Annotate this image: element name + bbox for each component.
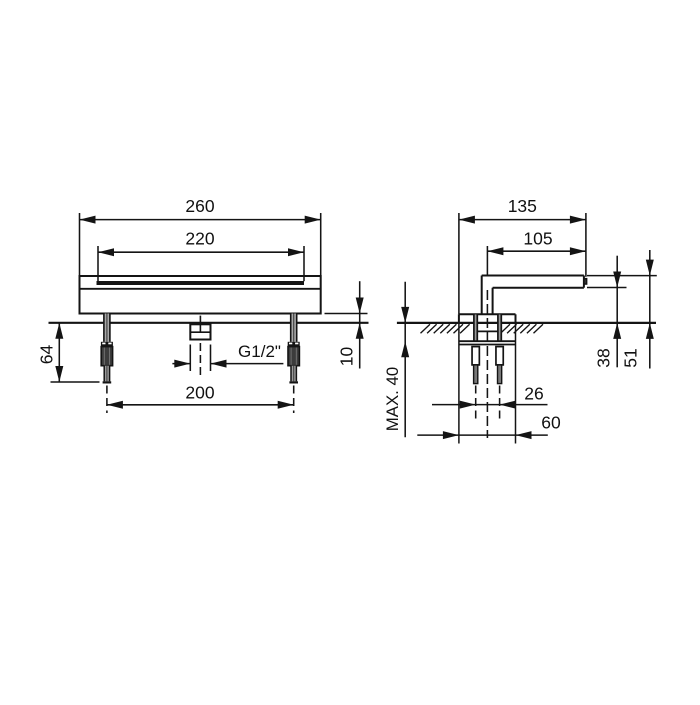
svg-text:51: 51 [621,348,641,367]
svg-text:26: 26 [524,384,543,404]
svg-text:10: 10 [337,347,357,367]
svg-text:260: 260 [185,196,214,216]
svg-text:64: 64 [37,345,57,365]
svg-text:38: 38 [594,348,614,367]
svg-text:220: 220 [185,229,214,249]
svg-text:200: 200 [185,383,214,403]
svg-text:60: 60 [541,413,561,433]
svg-text:135: 135 [508,196,537,216]
svg-text:MAX. 40: MAX. 40 [383,367,402,431]
svg-text:G1/2": G1/2" [238,342,281,361]
svg-text:105: 105 [523,229,552,249]
